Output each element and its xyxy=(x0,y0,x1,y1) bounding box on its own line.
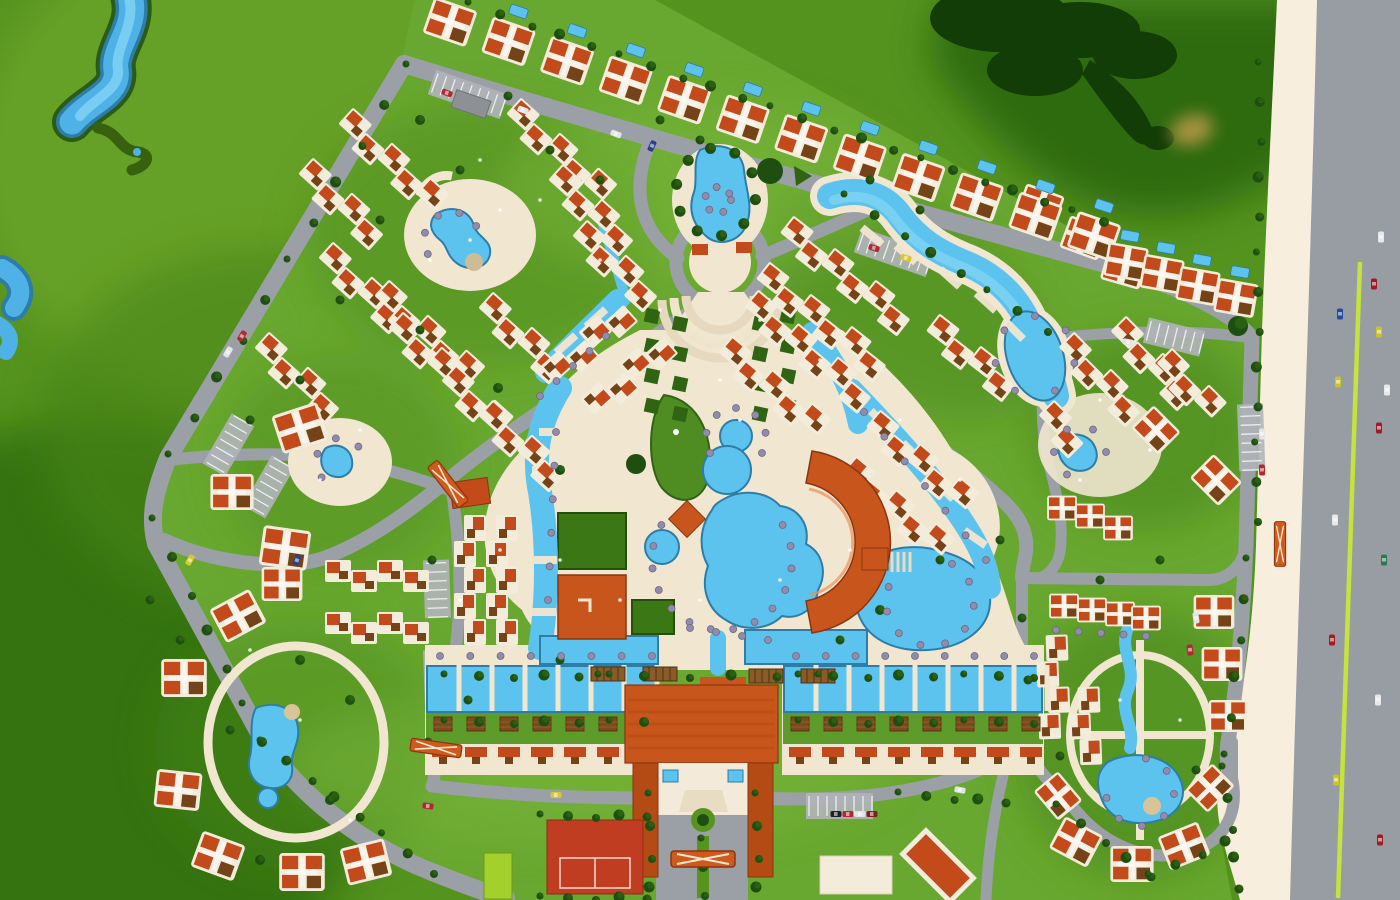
tree xyxy=(951,796,959,804)
tree xyxy=(1228,852,1239,863)
umbrella xyxy=(497,653,504,660)
umbrella xyxy=(881,433,888,440)
umbrella xyxy=(473,223,480,230)
pool-divider xyxy=(1012,665,1017,711)
tree xyxy=(1053,801,1060,808)
umbrella xyxy=(917,641,924,648)
path-light xyxy=(848,548,852,552)
pool-divider xyxy=(556,665,561,711)
tree xyxy=(686,674,694,682)
tree xyxy=(546,146,555,155)
tree xyxy=(738,218,749,229)
umbrella xyxy=(1032,313,1039,320)
umbrella xyxy=(733,405,740,412)
tree xyxy=(1255,59,1262,66)
umbrella xyxy=(971,653,978,660)
highway-car xyxy=(1381,555,1387,566)
umbrella xyxy=(769,605,776,612)
golf-lake-west xyxy=(0,268,20,352)
tree xyxy=(592,814,600,822)
umbrella xyxy=(1161,813,1168,820)
tree xyxy=(1251,362,1262,373)
umbrella xyxy=(901,458,908,465)
southeast-lagoon xyxy=(1098,755,1183,823)
tree xyxy=(696,136,705,145)
tree xyxy=(698,835,705,842)
umbrella xyxy=(527,653,534,660)
highway-car xyxy=(1375,695,1381,706)
umbrella xyxy=(941,653,948,660)
umbrella xyxy=(1138,822,1145,829)
umbrella xyxy=(588,653,595,660)
path-light xyxy=(778,578,782,582)
tree xyxy=(260,295,270,305)
umbrella xyxy=(822,653,829,660)
tree xyxy=(643,813,652,822)
umbrella xyxy=(546,563,553,570)
tree xyxy=(675,206,686,217)
path-light xyxy=(358,428,362,432)
tree xyxy=(1121,852,1132,863)
parterre-hedge xyxy=(644,308,661,325)
tree xyxy=(864,674,872,682)
path-light xyxy=(898,418,902,422)
pool-divider xyxy=(523,665,528,711)
umbrella xyxy=(437,653,444,660)
tree xyxy=(692,225,703,236)
tree xyxy=(416,326,425,335)
umbrella xyxy=(545,597,552,604)
tree xyxy=(752,790,759,797)
villa xyxy=(279,853,325,891)
tree xyxy=(1235,885,1244,894)
tree xyxy=(211,372,222,383)
umbrella xyxy=(961,625,968,632)
tree xyxy=(1228,671,1239,682)
umbrella xyxy=(702,192,709,199)
path-light xyxy=(598,258,602,262)
tree xyxy=(705,81,716,92)
east-row-villa xyxy=(1175,266,1221,307)
tree xyxy=(1192,766,1201,775)
tree xyxy=(1102,839,1110,847)
west-pool xyxy=(321,446,352,477)
tree xyxy=(493,383,503,393)
tree xyxy=(176,636,185,645)
tree xyxy=(679,75,687,83)
path-light xyxy=(1098,398,1102,402)
umbrella xyxy=(1115,815,1122,822)
tree xyxy=(1253,287,1263,297)
path-light xyxy=(428,258,432,262)
path-light xyxy=(1078,478,1082,482)
umbrella xyxy=(912,653,919,660)
pool-divider xyxy=(847,665,852,711)
foot-bridge xyxy=(530,608,556,616)
umbrella xyxy=(618,653,625,660)
tree xyxy=(948,165,958,175)
building-module xyxy=(464,567,486,593)
umbrella xyxy=(713,184,720,191)
tree xyxy=(336,296,345,305)
deck-pool-east xyxy=(745,630,867,664)
car xyxy=(1259,464,1265,475)
pool-bar xyxy=(862,548,888,570)
villa xyxy=(1194,595,1235,629)
umbrella xyxy=(942,507,949,514)
umbrella xyxy=(703,429,710,436)
tree xyxy=(1229,826,1237,834)
umbrella xyxy=(728,197,735,204)
umbrella xyxy=(1053,627,1060,634)
tree xyxy=(595,671,602,678)
tree xyxy=(751,882,762,893)
entrance-gate xyxy=(671,851,735,867)
umbrella xyxy=(1103,794,1110,801)
car xyxy=(831,811,842,817)
tree xyxy=(957,269,966,278)
service-building xyxy=(820,856,892,894)
umbrella xyxy=(1012,387,1019,394)
tree xyxy=(255,855,265,865)
tree xyxy=(830,127,838,135)
umbrella xyxy=(779,522,786,529)
umbrella xyxy=(739,633,746,640)
parterre-hedge xyxy=(752,346,769,363)
umbrella xyxy=(1163,767,1170,774)
building-module xyxy=(454,541,476,567)
island-dot xyxy=(673,429,679,435)
umbrella xyxy=(882,653,889,660)
tree xyxy=(701,892,709,900)
tree xyxy=(1156,556,1165,565)
tree xyxy=(1040,198,1049,207)
umbrella xyxy=(548,529,555,536)
pool-divider xyxy=(490,665,495,711)
tree xyxy=(726,670,737,681)
tree xyxy=(403,848,413,858)
building-module xyxy=(1079,738,1102,765)
umbrella xyxy=(787,542,794,549)
entrance-gate xyxy=(1274,522,1285,567)
tree xyxy=(755,855,763,863)
tree xyxy=(983,286,990,293)
building-module xyxy=(1078,686,1101,713)
tree xyxy=(284,256,291,263)
highway-car xyxy=(1378,232,1384,243)
tree xyxy=(345,695,355,705)
path-light xyxy=(658,308,662,312)
tree xyxy=(901,232,909,240)
deck-tree xyxy=(626,454,646,474)
tree xyxy=(1255,213,1264,222)
tree xyxy=(917,154,924,161)
villa xyxy=(1047,496,1077,521)
umbrella xyxy=(649,565,656,572)
tree xyxy=(563,811,573,821)
villa xyxy=(1103,516,1133,541)
tree xyxy=(639,717,649,727)
umbrella xyxy=(1001,653,1008,660)
tree xyxy=(746,167,757,178)
highway-car xyxy=(1377,835,1383,846)
umbrella xyxy=(558,653,565,660)
tree xyxy=(1257,138,1265,146)
tree xyxy=(752,821,762,831)
umbrella xyxy=(1120,631,1127,638)
building-module xyxy=(1038,713,1061,740)
umbrella xyxy=(1052,387,1059,394)
tree xyxy=(996,536,1005,545)
umbrella xyxy=(1051,449,1058,456)
highway-car xyxy=(1371,279,1377,290)
umbrella xyxy=(1143,633,1150,640)
umbrella xyxy=(551,462,558,469)
tree xyxy=(1239,594,1249,604)
tree xyxy=(936,556,945,565)
building-module xyxy=(377,560,403,582)
parterre-hedge xyxy=(644,398,661,415)
tree xyxy=(575,719,584,728)
tree xyxy=(1170,860,1180,870)
umbrella xyxy=(649,653,656,660)
tree xyxy=(648,855,656,863)
tree xyxy=(1096,576,1105,585)
umbrella xyxy=(1090,426,1097,433)
umbrella xyxy=(1098,630,1105,637)
building-module xyxy=(325,612,351,634)
tree xyxy=(1254,518,1262,526)
villa xyxy=(210,474,253,510)
umbrella xyxy=(983,557,990,564)
tree xyxy=(1220,836,1231,847)
tree xyxy=(1253,249,1260,256)
tree xyxy=(257,737,264,744)
tree xyxy=(1002,799,1011,808)
tree xyxy=(1251,477,1261,487)
tree xyxy=(295,655,305,665)
villa xyxy=(1075,504,1105,529)
tree xyxy=(836,636,845,645)
tree xyxy=(828,671,838,681)
tree xyxy=(441,717,448,724)
tree xyxy=(474,671,484,681)
master-plan-svg xyxy=(0,0,1400,900)
umbrella xyxy=(314,450,321,457)
tree xyxy=(554,29,565,40)
tree xyxy=(376,216,385,225)
golf-puddle xyxy=(133,148,141,156)
building-module xyxy=(496,515,518,541)
umbrella xyxy=(949,560,956,567)
pool-divider xyxy=(946,665,951,711)
umbrella xyxy=(793,653,800,660)
path-light xyxy=(558,558,562,562)
tree xyxy=(866,176,875,185)
umbrella xyxy=(966,578,973,585)
tree xyxy=(358,142,366,150)
umbrella xyxy=(553,378,560,385)
tree xyxy=(644,882,655,893)
villa xyxy=(258,525,311,571)
building-module xyxy=(377,612,403,634)
tree xyxy=(1237,636,1245,644)
umbrella xyxy=(1064,426,1071,433)
tree xyxy=(994,717,1004,727)
tree xyxy=(1056,752,1065,761)
umbrella xyxy=(720,208,727,215)
tree xyxy=(1223,793,1233,803)
tree xyxy=(428,556,437,565)
tree xyxy=(981,178,989,186)
tree xyxy=(828,717,838,727)
umbrella xyxy=(751,618,758,625)
path-light xyxy=(248,648,252,652)
tree xyxy=(960,717,967,724)
umbrella xyxy=(992,359,999,366)
building-module xyxy=(496,567,518,593)
plaza-tree xyxy=(757,158,783,184)
tree xyxy=(510,720,518,728)
tree xyxy=(246,416,255,425)
umbrella xyxy=(650,542,657,549)
southwest-pond-b xyxy=(258,788,278,808)
umbrella xyxy=(1031,653,1038,660)
tree xyxy=(587,42,596,51)
villa xyxy=(1131,606,1161,631)
hedge-garden-2 xyxy=(632,600,674,634)
tree xyxy=(656,116,665,125)
umbrella xyxy=(713,412,720,419)
umbrella xyxy=(788,565,795,572)
umbrella xyxy=(884,608,891,615)
tree xyxy=(1030,720,1038,728)
tree xyxy=(239,700,246,707)
tree xyxy=(916,206,925,215)
tree xyxy=(165,451,172,458)
tree xyxy=(281,756,291,766)
tree xyxy=(606,671,613,678)
tree xyxy=(441,671,448,678)
tree xyxy=(870,210,880,220)
tree xyxy=(495,9,505,19)
umbrella xyxy=(1001,327,1008,334)
building-module xyxy=(486,593,508,619)
tree xyxy=(528,23,536,31)
highway-car xyxy=(1329,635,1335,646)
umbrella xyxy=(762,429,769,436)
path-light xyxy=(958,478,962,482)
site-plan-canvas xyxy=(0,0,1400,900)
umbrella xyxy=(1062,327,1069,334)
building-module xyxy=(351,570,377,592)
tree xyxy=(645,821,655,831)
parterre-hedge xyxy=(644,368,661,385)
highway-car xyxy=(1376,327,1382,338)
tree xyxy=(539,670,550,681)
villa xyxy=(1077,598,1107,623)
lagoon-beach xyxy=(1143,797,1161,815)
car xyxy=(1259,428,1265,439)
tree xyxy=(1228,316,1248,336)
umbrella xyxy=(537,393,544,400)
building-module xyxy=(1068,713,1091,740)
path-light xyxy=(1178,718,1182,722)
pool-building xyxy=(558,575,626,639)
building-module xyxy=(486,541,508,567)
tree xyxy=(537,893,544,900)
hotel-fountain-east xyxy=(728,770,743,782)
umbrella xyxy=(922,483,929,490)
tree xyxy=(1076,819,1086,829)
east-row-villa xyxy=(1213,278,1259,319)
tree xyxy=(606,717,613,724)
umbrella xyxy=(885,583,892,590)
tree xyxy=(223,665,232,674)
umbrella xyxy=(1064,471,1071,478)
path-light xyxy=(498,548,502,552)
umbrella xyxy=(603,333,610,340)
southeast-stream xyxy=(1125,628,1131,748)
tree xyxy=(639,671,649,681)
path-light xyxy=(478,158,482,162)
tree xyxy=(504,92,513,101)
path-light xyxy=(618,598,622,602)
tree xyxy=(188,592,196,600)
umbrella xyxy=(752,412,759,419)
path-light xyxy=(738,418,742,422)
tree xyxy=(773,673,782,682)
hedge-garden-1 xyxy=(558,513,626,569)
umbrella xyxy=(687,625,694,632)
foot-bridge xyxy=(539,428,565,436)
tree xyxy=(1253,172,1264,183)
path-light xyxy=(348,818,352,822)
tree xyxy=(1227,713,1236,722)
path-light xyxy=(1118,698,1122,702)
umbrella xyxy=(456,209,463,216)
tree xyxy=(430,870,438,878)
tree xyxy=(226,726,235,735)
highway-car xyxy=(1337,309,1343,320)
umbrella xyxy=(1071,359,1078,366)
highway-car xyxy=(1332,515,1338,526)
tree xyxy=(921,791,931,801)
umbrella xyxy=(962,532,969,539)
tree xyxy=(1012,306,1022,316)
tree xyxy=(683,155,694,166)
tree xyxy=(1024,676,1033,685)
tree xyxy=(615,50,622,57)
tree xyxy=(456,166,465,175)
tree xyxy=(893,716,904,727)
pool-divider xyxy=(457,665,462,711)
tree xyxy=(167,552,177,562)
umbrella xyxy=(758,450,765,457)
tree xyxy=(738,94,747,103)
highway-car xyxy=(1376,423,1382,434)
umbrella xyxy=(435,212,442,219)
umbrella xyxy=(852,653,859,660)
villa xyxy=(153,769,202,812)
path-light xyxy=(318,478,322,482)
umbrella xyxy=(1170,790,1177,797)
path-light xyxy=(498,208,502,212)
umbrella xyxy=(655,587,662,594)
tree xyxy=(1254,403,1263,412)
tree xyxy=(190,414,199,423)
tree xyxy=(705,143,716,154)
